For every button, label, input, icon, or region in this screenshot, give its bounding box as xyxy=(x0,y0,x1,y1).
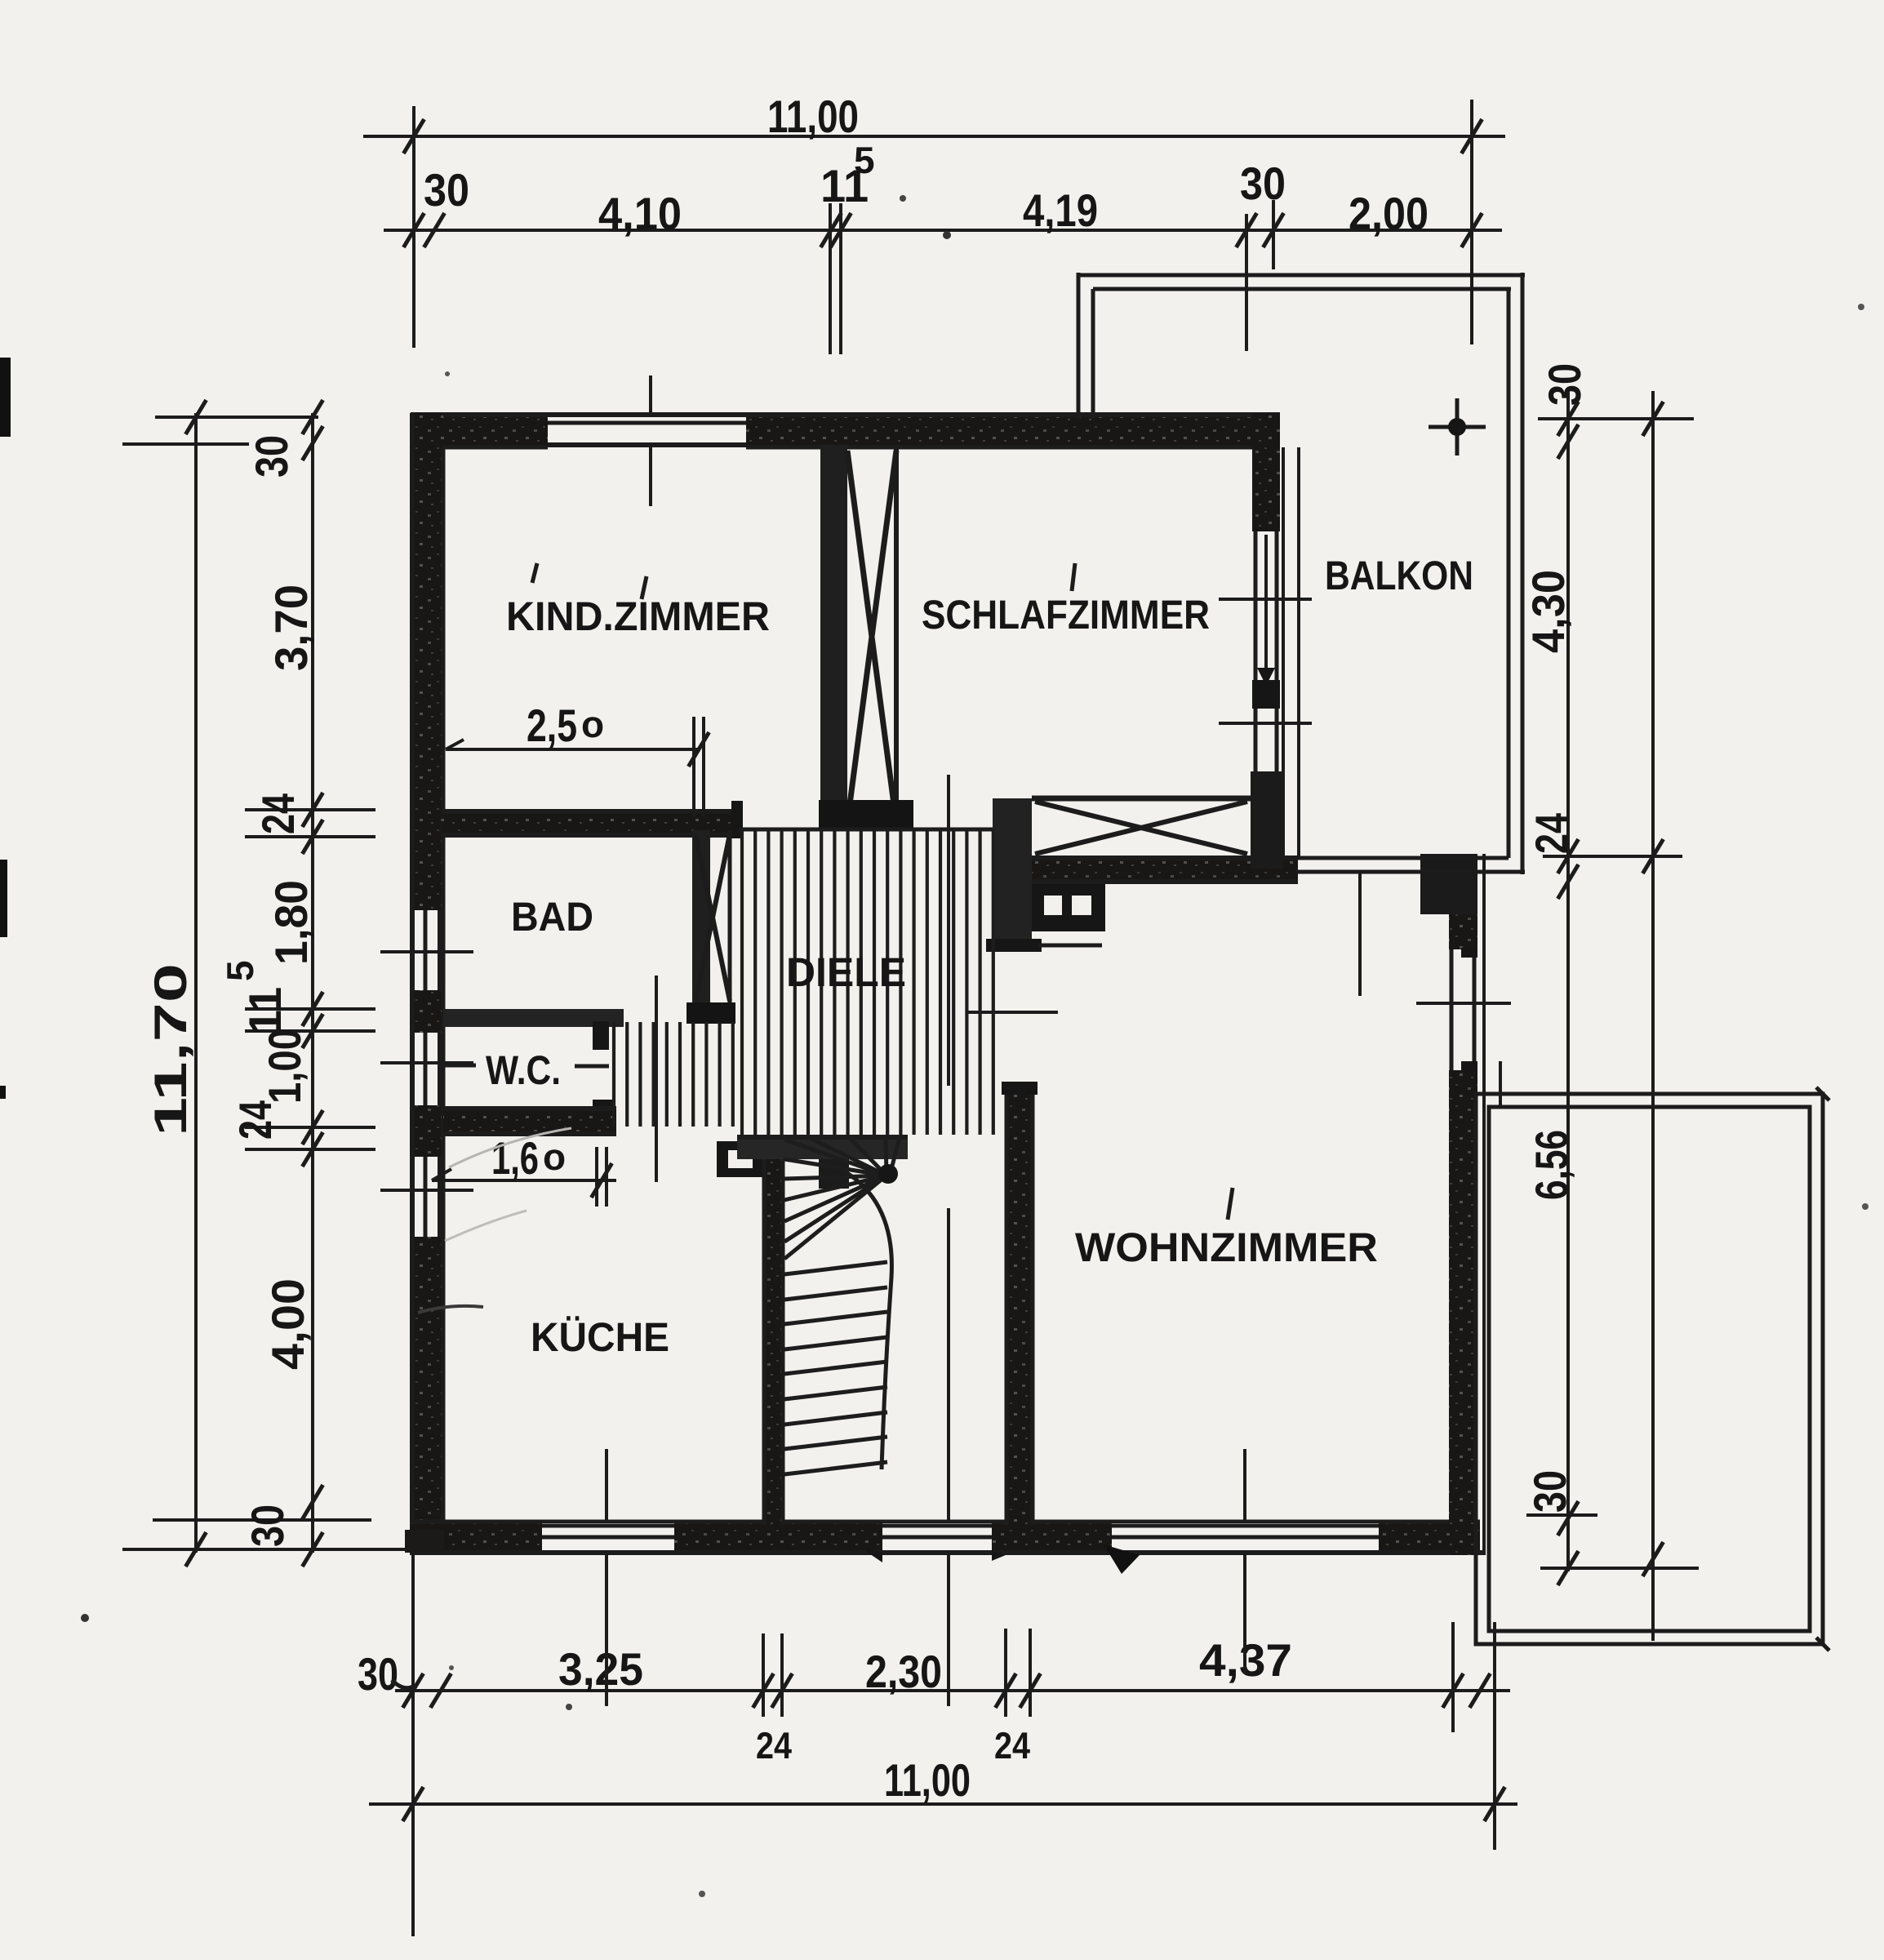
svg-text:24: 24 xyxy=(1526,813,1577,854)
svg-text:11,00: 11,00 xyxy=(767,91,859,142)
svg-text:24: 24 xyxy=(994,1724,1030,1767)
svg-text:30: 30 xyxy=(246,435,297,478)
svg-text:1,80: 1,80 xyxy=(265,880,317,965)
svg-text:3,25: 3,25 xyxy=(558,1643,643,1695)
svg-text:BAD: BAD xyxy=(511,894,593,940)
svg-text:2,00: 2,00 xyxy=(1349,188,1429,239)
svg-text:5: 5 xyxy=(219,960,261,981)
svg-text:30: 30 xyxy=(424,164,469,216)
svg-text:2,30: 2,30 xyxy=(865,1646,942,1697)
svg-text:1,00: 1,00 xyxy=(259,1029,310,1104)
svg-text:4,10: 4,10 xyxy=(598,188,682,239)
svg-text:2,5: 2,5 xyxy=(527,700,577,751)
svg-text:4,30: 4,30 xyxy=(1522,570,1574,653)
svg-text:6,56: 6,56 xyxy=(1526,1130,1577,1200)
svg-text:30: 30 xyxy=(242,1504,293,1547)
svg-text:24: 24 xyxy=(756,1724,792,1767)
svg-text:o: o xyxy=(581,703,604,745)
svg-text:24: 24 xyxy=(229,1100,281,1140)
svg-text:BALKON: BALKON xyxy=(1325,553,1473,598)
svg-text:30: 30 xyxy=(1240,158,1286,209)
svg-text:SCHLAFZIMMER: SCHLAFZIMMER xyxy=(922,592,1210,638)
svg-text:30: 30 xyxy=(1524,1470,1575,1513)
svg-text:o: o xyxy=(543,1136,566,1178)
svg-text:3,70: 3,70 xyxy=(265,584,317,671)
svg-text:11: 11 xyxy=(239,987,291,1035)
svg-text:4,00: 4,00 xyxy=(262,1278,313,1370)
svg-text:KÜCHE: KÜCHE xyxy=(531,1314,669,1360)
svg-text:WOHNZIMMER: WOHNZIMMER xyxy=(1075,1224,1378,1270)
svg-text:30: 30 xyxy=(1539,363,1590,406)
svg-text:5: 5 xyxy=(854,139,875,181)
svg-text:11,70: 11,70 xyxy=(144,963,196,1136)
svg-text:11,00: 11,00 xyxy=(884,1754,971,1806)
svg-text:W.C.: W.C. xyxy=(486,1047,561,1093)
svg-text:KIND.ZIMMER: KIND.ZIMMER xyxy=(506,593,770,639)
svg-text:DIELE: DIELE xyxy=(786,949,906,995)
svg-text:30: 30 xyxy=(358,1648,398,1700)
svg-text:24: 24 xyxy=(252,793,304,834)
svg-text:4,19: 4,19 xyxy=(1023,184,1098,236)
